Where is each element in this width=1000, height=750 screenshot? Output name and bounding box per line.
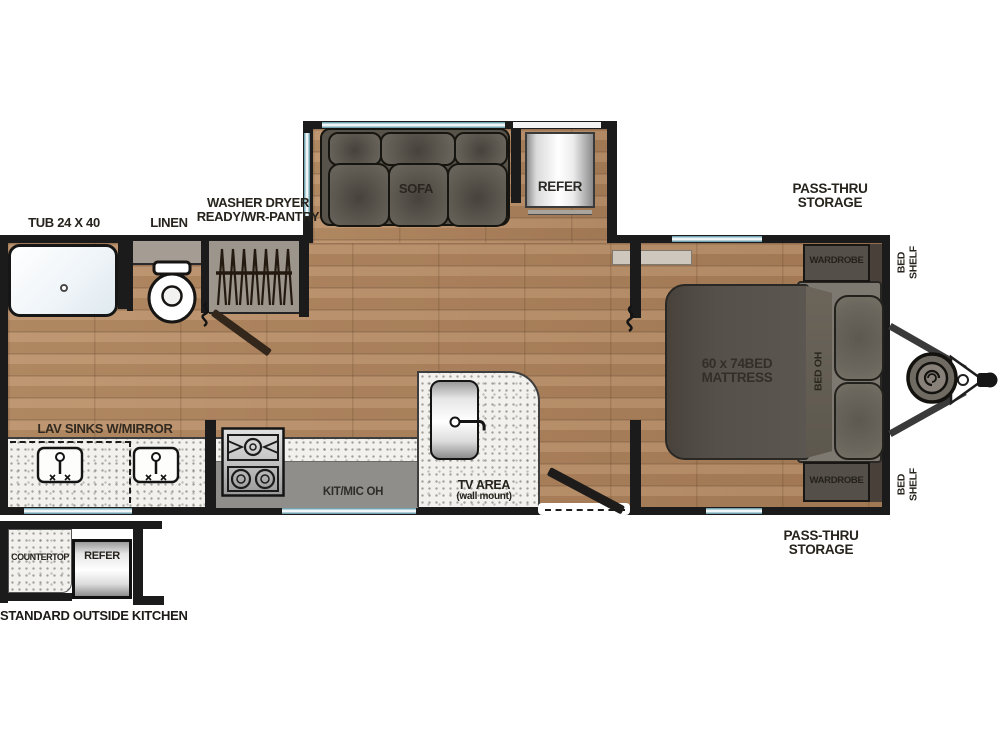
washer-dryer-label: WASHER DRYER READY/WR-PANTRY: [196, 196, 320, 223]
countertop-label: COUNTERTOP: [6, 553, 74, 562]
refer-label: REFER: [526, 180, 594, 194]
kit-mic-oh-label: KIT/MIC OH: [298, 486, 408, 498]
tv-area-label: TV AREA (wall mount): [424, 479, 544, 503]
kitchen-bottom-window: [282, 508, 416, 514]
refrigerator-base: [528, 210, 592, 215]
outside-refrigerator: [72, 539, 132, 599]
linen-wall-left: [127, 241, 133, 311]
sofa-back-cushion: [328, 132, 382, 166]
washer-wall-right: [299, 241, 309, 317]
bedroom-entry-step: [612, 250, 692, 265]
sofa-back-cushion: [454, 132, 508, 166]
pass-thru-storage-top-label: PASS-THRU STORAGE: [770, 182, 890, 210]
linen-label: LINEN: [133, 216, 205, 230]
door-hinge-squiggle-icon: [622, 305, 640, 333]
clothes-hangers-icon: [213, 244, 295, 310]
door-hinge-squiggle-icon: [198, 302, 214, 328]
sofa-seat-cushion: [447, 163, 508, 227]
lav-sink-icon: [36, 446, 84, 484]
slideout-divider-wall: [511, 129, 521, 203]
wardrobe-top-label: WARDROBE: [803, 256, 870, 266]
wall-left: [0, 235, 8, 515]
sofa-label: SOFA: [383, 182, 449, 196]
bed-pillow: [834, 295, 884, 381]
bed-shelf-top-label: BED SHELF: [896, 241, 919, 285]
bedroom-bottom-window: [706, 508, 762, 514]
slideout-top-gap: [513, 122, 601, 128]
wardrobe-bottom-label: WARDROBE: [803, 476, 870, 486]
propane-tank-icon: [908, 354, 956, 402]
pass-thru-storage-bottom-label: PASS-THRU STORAGE: [762, 529, 880, 557]
sofa-seat-cushion: [328, 163, 390, 227]
bed-pillow: [834, 382, 884, 460]
outside-refer-label: REFER: [72, 551, 132, 563]
a-frame-hitch-icon: [883, 293, 1000, 467]
kitchen-bath-wall: [205, 420, 216, 515]
outside-kitchen-wall-bottom-left: [0, 593, 72, 601]
outside-kitchen-wall-right: [133, 521, 143, 598]
bedroom-wall-bottom: [630, 420, 641, 507]
lav-sink-icon: [132, 446, 180, 484]
sofa-back-cushion: [380, 132, 456, 166]
bathtub: [8, 244, 118, 317]
tub-label: TUB 24 X 40: [8, 216, 120, 230]
lav-sinks-label: LAV SINKS W/MIRROR: [25, 422, 185, 436]
kitchen-faucet-icon: [447, 412, 489, 434]
cooktop-icon: [221, 427, 285, 497]
mattress-label: 60 x 74BED MATTRESS: [666, 357, 808, 385]
bath-bottom-window: [24, 508, 132, 514]
floorplan-canvas: SOFA REFER: [0, 0, 1000, 750]
outside-kitchen-caption: STANDARD OUTSIDE KITCHEN: [0, 609, 172, 623]
toilet-icon: [143, 260, 201, 324]
bed-oh-label: BED OH: [813, 334, 824, 410]
slideout-wall-right: [607, 121, 617, 243]
outside-kitchen-wall-bottom-right: [133, 596, 164, 605]
slideout-refrigerator: [525, 132, 595, 208]
tub-drain: [60, 284, 68, 292]
bed-shelf-bottom-label: BED SHELF: [896, 463, 919, 507]
bedroom-top-window: [672, 236, 762, 242]
